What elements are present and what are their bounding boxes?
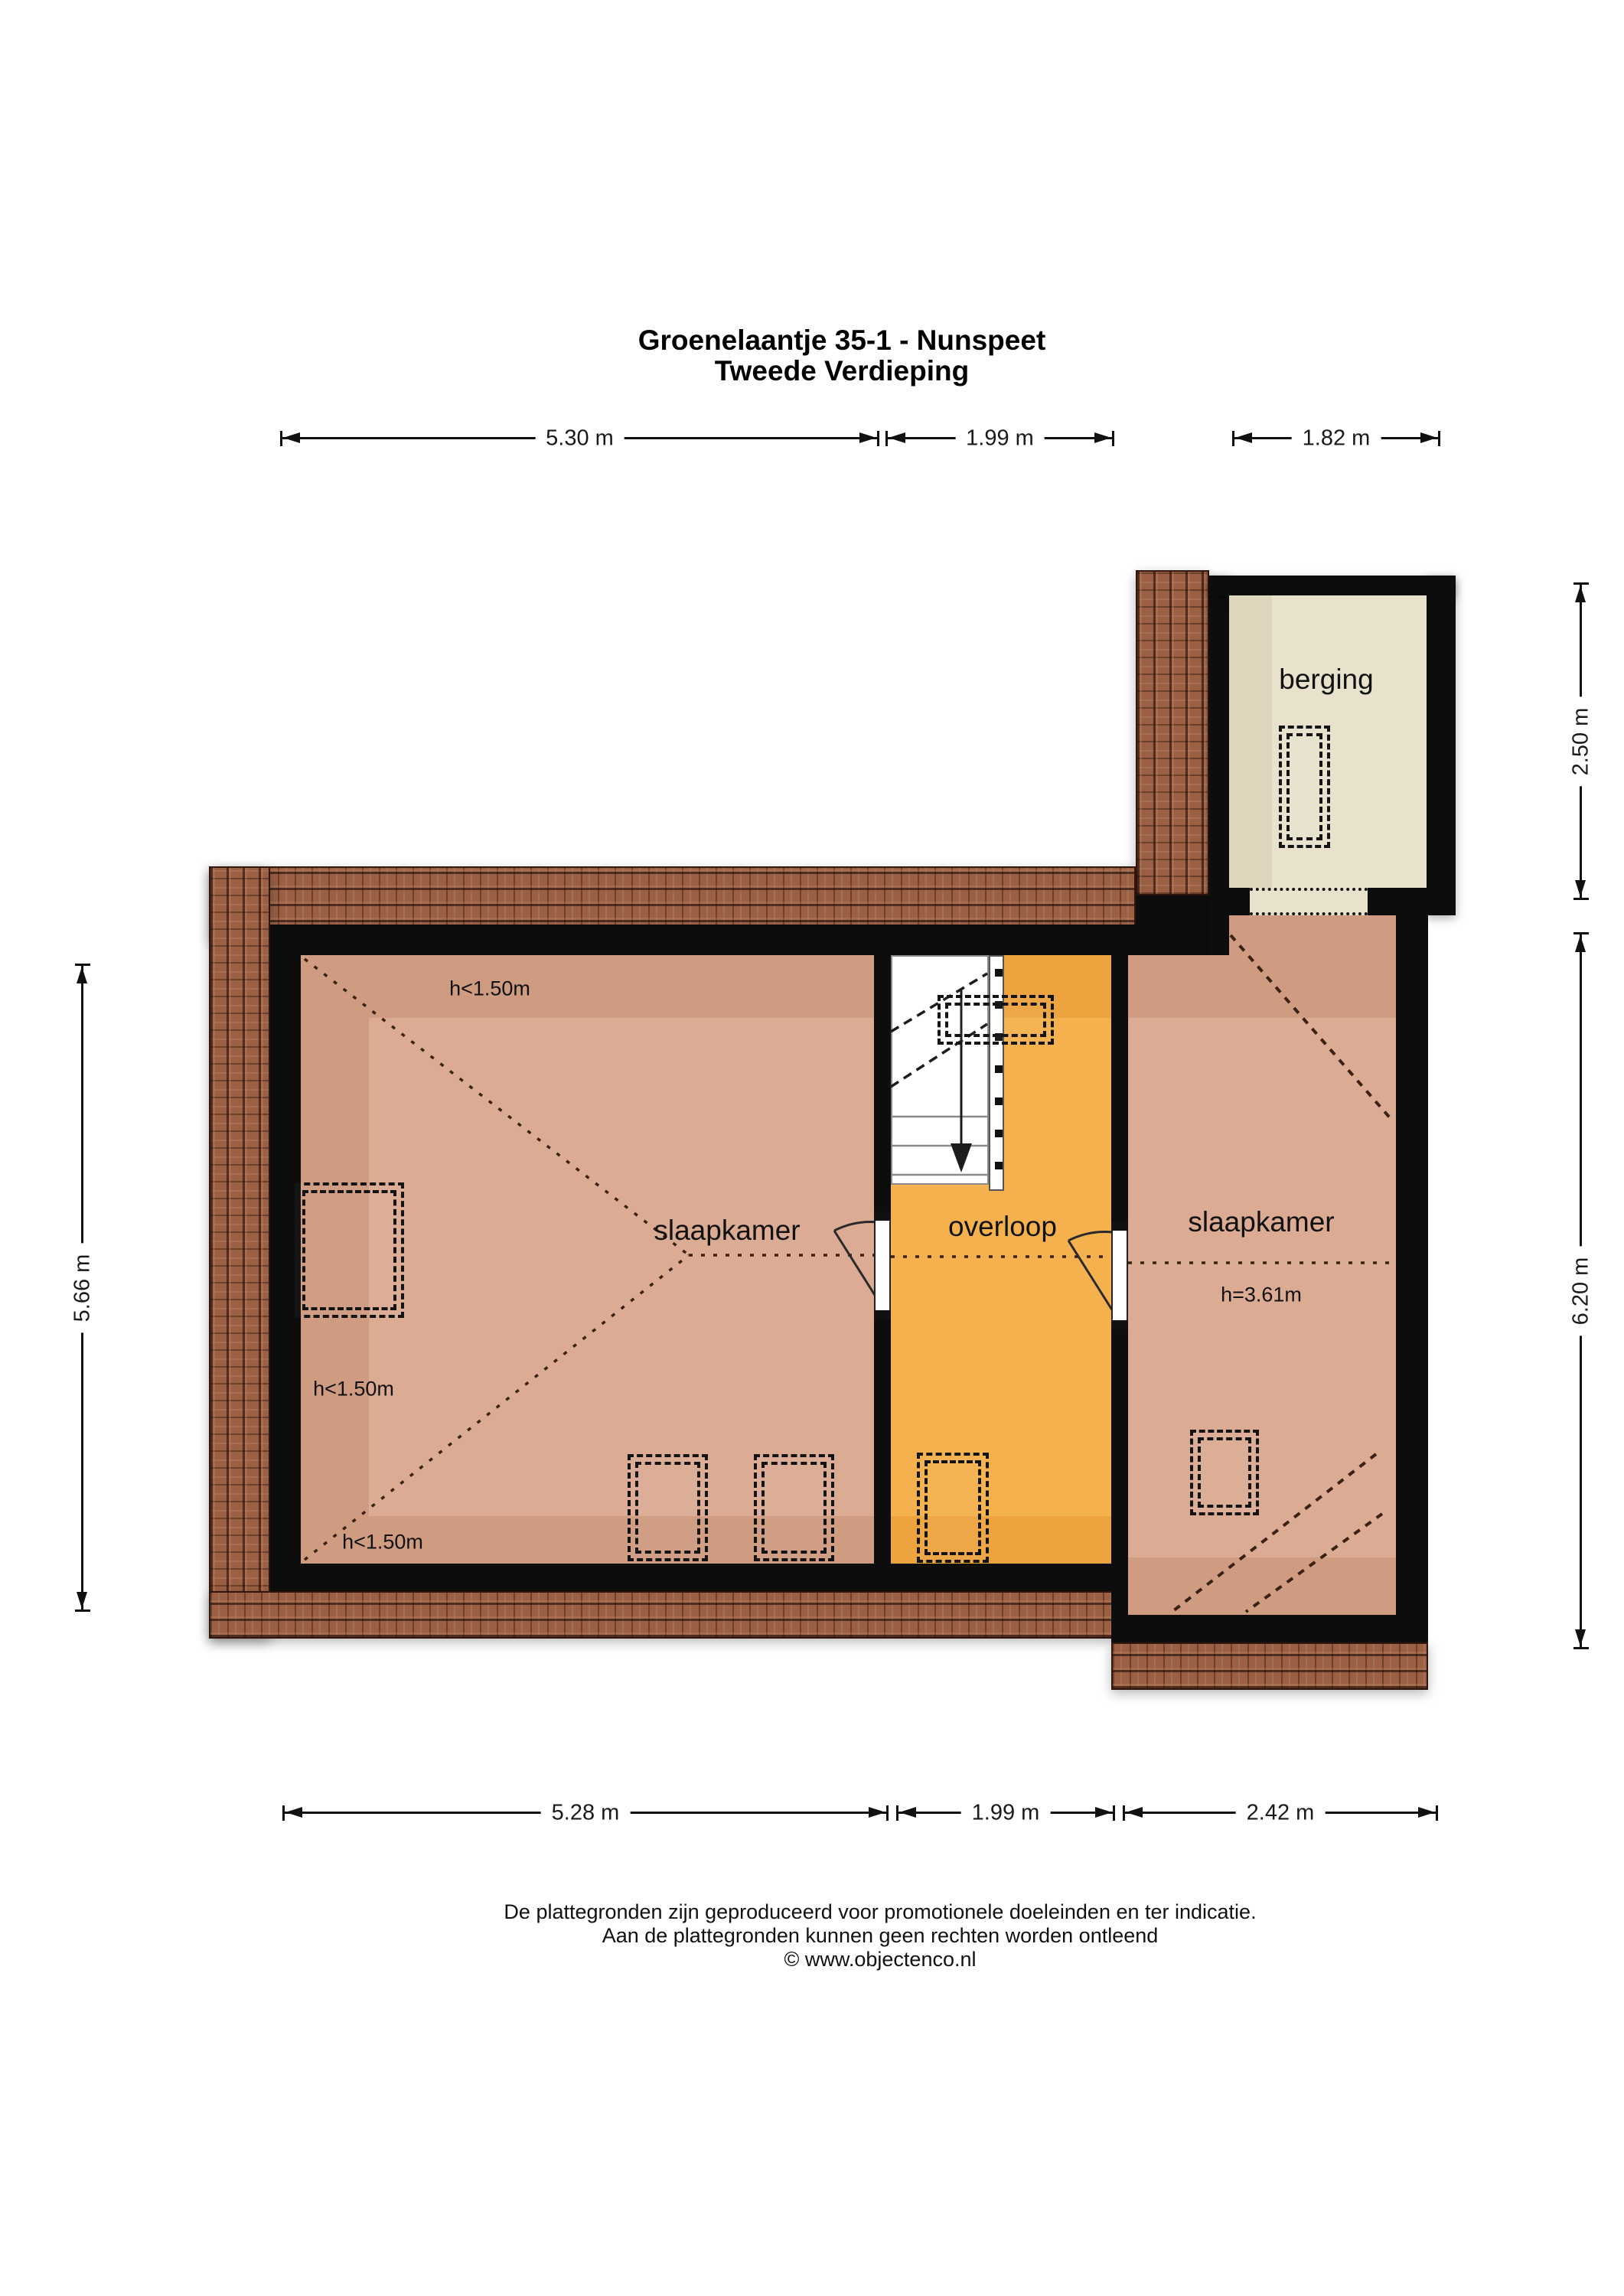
door-cap (1111, 1320, 1128, 1329)
height-label-left: h<1.50m (313, 1378, 394, 1401)
footer-disclaimer: De plattegronden zijn geproduceerd voor … (115, 1900, 1624, 1971)
roof-window (1190, 1430, 1259, 1515)
footer-line-1: De plattegronden zijn geproduceerd voor … (115, 1900, 1624, 1924)
room-label-overloop: overloop (948, 1211, 1057, 1243)
dimension-left: 5.66 m (71, 964, 94, 1611)
door-cap (874, 1310, 891, 1319)
footer-line-2: Aan de plattegronden kunnen geen rechten… (115, 1924, 1624, 1948)
room-label-slaapkamer-right: slaapkamer (1188, 1206, 1334, 1238)
dimension-top-2: 1.99 m (886, 427, 1114, 450)
roof-window (295, 1182, 404, 1318)
roof-window (754, 1454, 834, 1561)
room-label-slaapkamer-left: slaapkamer (654, 1215, 800, 1247)
dimension-right-2: 6.20 m (1570, 933, 1593, 1649)
height-label-bottom: h<1.50m (342, 1531, 423, 1554)
roof-window-stairs (938, 995, 1054, 1045)
door-cap (874, 1212, 891, 1221)
door-leaf-right (1111, 1225, 1128, 1323)
dimension-bottom-3: 2.42 m (1123, 1802, 1437, 1825)
door-leaf-left (874, 1215, 891, 1313)
dimension-bottom-2: 1.99 m (897, 1802, 1114, 1825)
floorplan: Groenelaantje 35-1 - Nunspeet Tweede Ver… (0, 0, 1624, 2296)
door-cap (1111, 1221, 1128, 1231)
roof-window (628, 1454, 708, 1561)
dimension-bottom-1: 5.28 m (283, 1802, 888, 1825)
height-label-right-room: h=3.61m (1221, 1283, 1302, 1307)
footer-line-3: © www.objectenco.nl (115, 1948, 1624, 1971)
dimension-top-3: 1.82 m (1233, 427, 1440, 450)
dimension-right-1: 2.50 m (1570, 583, 1593, 899)
dimension-top-1: 5.30 m (281, 427, 879, 450)
roof-window (917, 1453, 989, 1563)
roof-window-berging (1279, 726, 1330, 848)
height-label-top: h<1.50m (449, 977, 530, 1001)
room-label-berging: berging (1279, 664, 1373, 696)
